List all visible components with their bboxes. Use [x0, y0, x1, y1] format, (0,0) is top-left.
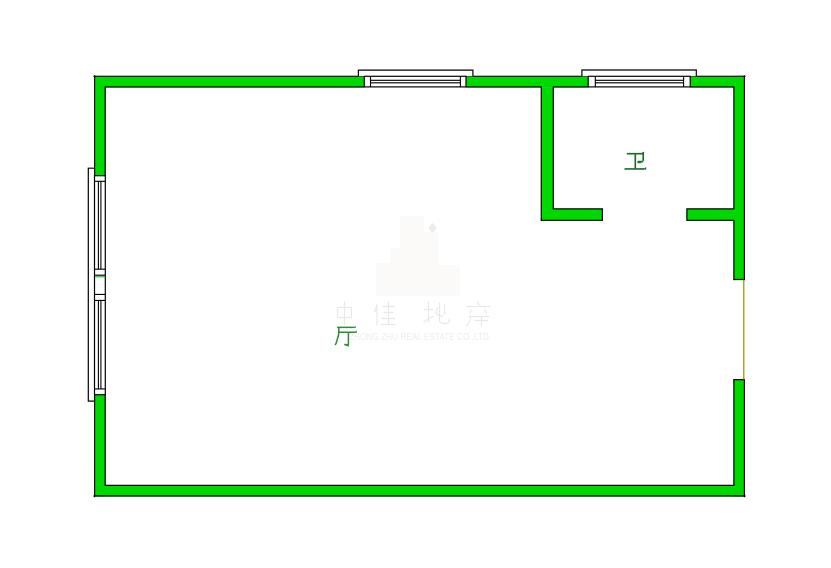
svg-text:ZHONG ZHU REAL ESTATE CO.,LTD: ZHONG ZHU REAL ESTATE CO.,LTD: [349, 331, 489, 343]
